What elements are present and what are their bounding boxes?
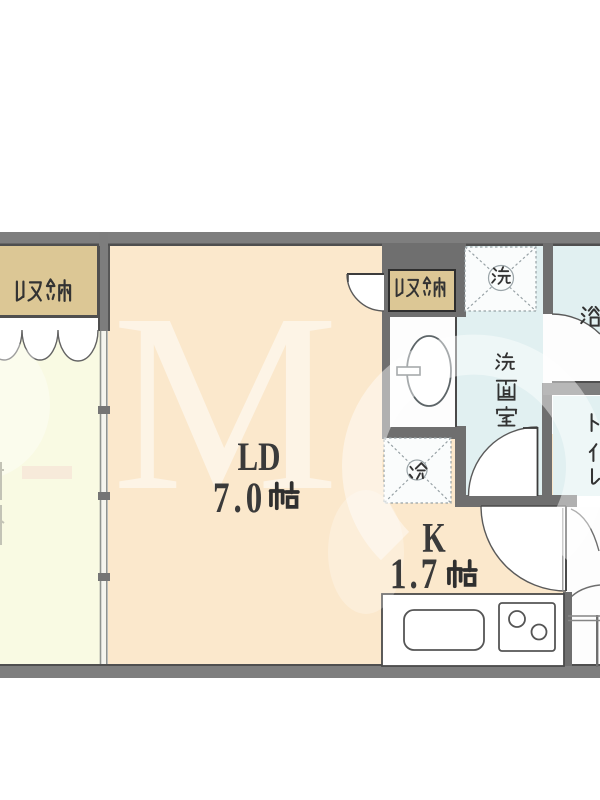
- svg-text:7.0: 7.0: [213, 474, 266, 523]
- svg-text:1.7: 1.7: [390, 551, 440, 598]
- svg-text:LD: LD: [237, 434, 280, 479]
